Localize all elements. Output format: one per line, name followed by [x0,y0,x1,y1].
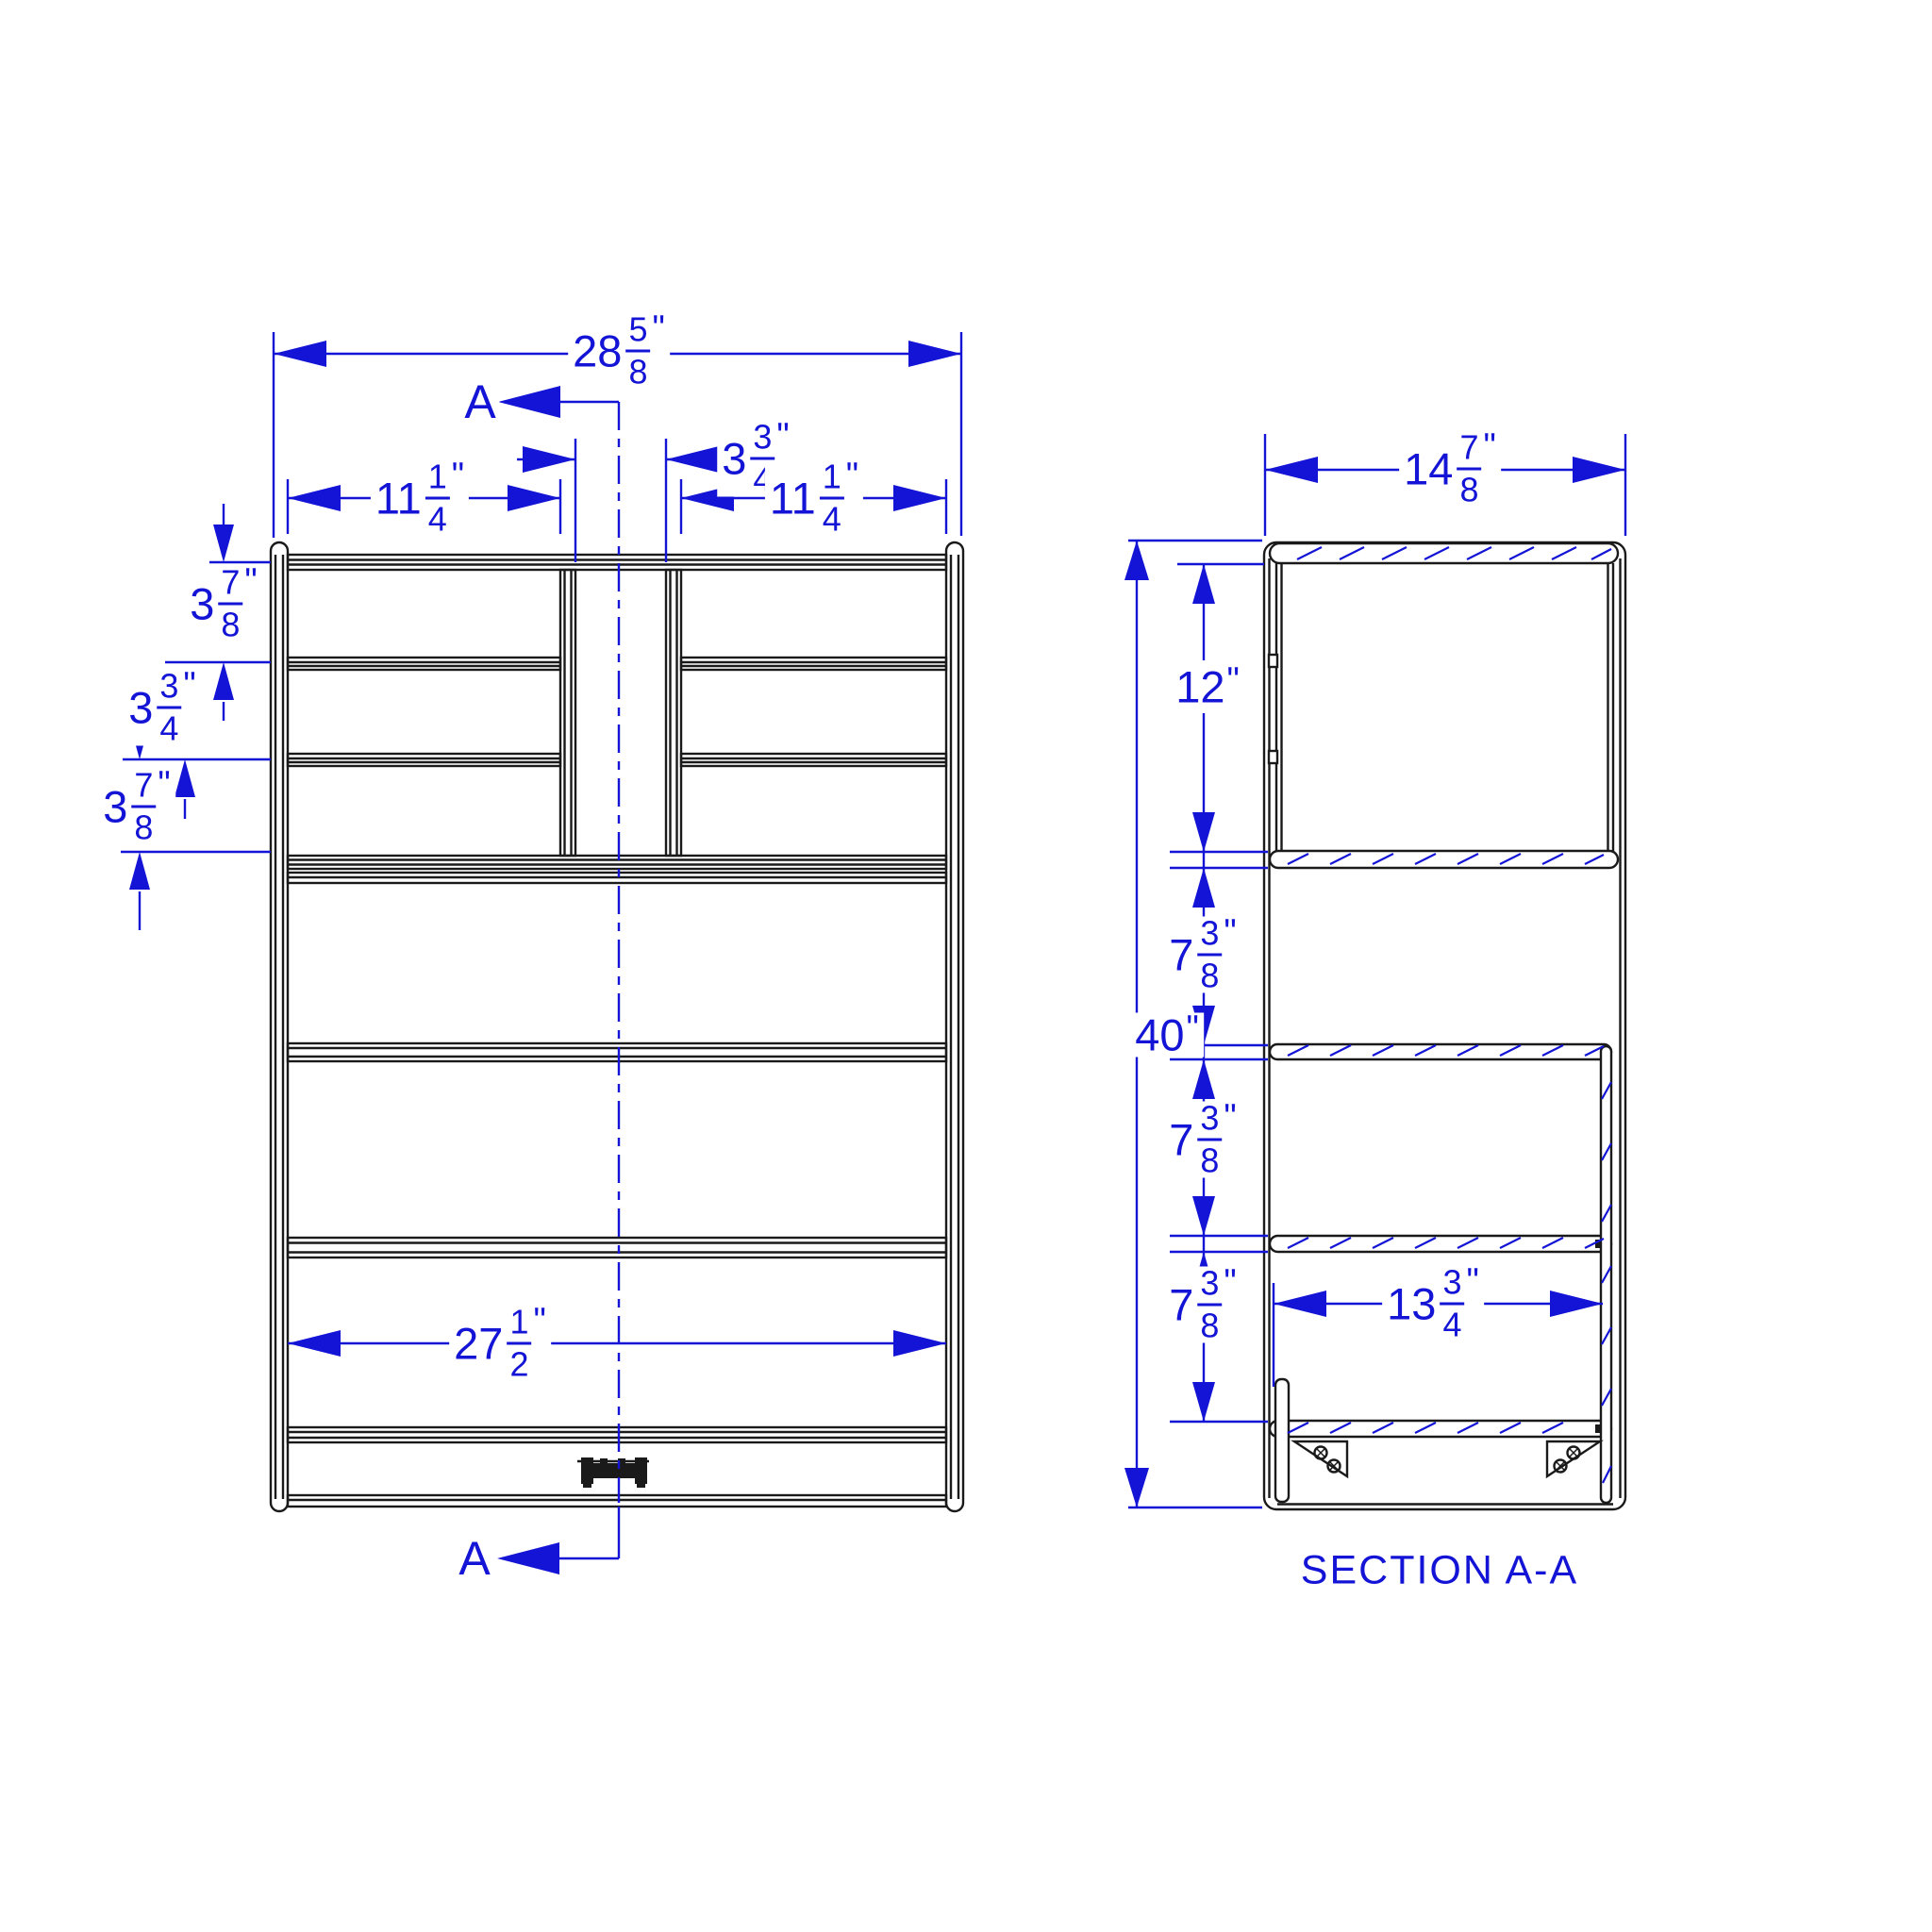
cad-drawing-sheet: 28 58 " A A 3 34 " 11 14 " 11 14 " 3 78 … [0,0,1932,1932]
mullion-right [666,570,681,856]
full-rail-2 [288,1043,946,1061]
dim-row-2: 3 34 " [124,670,201,746]
side-rail-upper-right [681,658,946,670]
drawing-linework [0,0,1932,1932]
corner-bracket-left [1294,1441,1347,1476]
section-view [1264,542,1625,1509]
section-shelf-1 [1270,851,1618,868]
section-arrow-top [498,386,560,418]
bottom-left-bar [1275,1379,1289,1502]
section-title: SECTION A-A [1301,1551,1578,1591]
front-view [271,542,963,1511]
post-inner-lines [275,555,958,1499]
dim-depth: 14 78 " [1399,431,1501,508]
section-arrow-bottom [497,1542,559,1574]
section-outer-profile [1264,542,1625,1509]
left-post [271,542,288,1511]
left-wall-tab-2 [1269,751,1277,763]
dim-gap-3: 7 38 " [1164,1267,1241,1343]
dim-overall-width: 28 58 " [568,313,670,390]
dim-inner-width: 27 12 " [449,1306,551,1382]
dim-row-3: 3 78 " [98,769,175,845]
dimension-lines [121,332,1625,1558]
dim-inner-depth: 13 34 " [1382,1266,1484,1342]
side-rail-upper-left [288,658,560,670]
dim-row-1: 3 78 " [185,566,262,642]
mullion-left [560,570,575,856]
dim-overall-height: 40 " [1130,1013,1204,1058]
dim-top-opening: 12 " [1171,665,1244,709]
right-post [946,542,963,1511]
dim-gap-2: 7 38 " [1164,1102,1241,1178]
left-wall-tab-1 [1269,655,1277,667]
section-marker-bottom: A [455,1535,493,1582]
section-inner-walls [1276,563,1613,851]
top-rail [288,555,946,570]
side-rail-lower-left [288,754,560,766]
side-rail-lower-right [681,754,946,766]
section-marker-top: A [460,378,499,425]
dim-left-opening: 11 14 " [371,460,469,537]
full-rail-1a [288,856,946,869]
full-rail-3 [288,1238,946,1257]
dim-gap-1: 7 38 " [1164,917,1241,993]
full-rail-4 [288,1427,946,1442]
dim-right-opening: 11 14 " [765,460,863,537]
section-marker-leaders [559,402,619,1558]
corner-bracket-right [1547,1441,1600,1476]
dimension-arrowheads [129,341,1625,1574]
